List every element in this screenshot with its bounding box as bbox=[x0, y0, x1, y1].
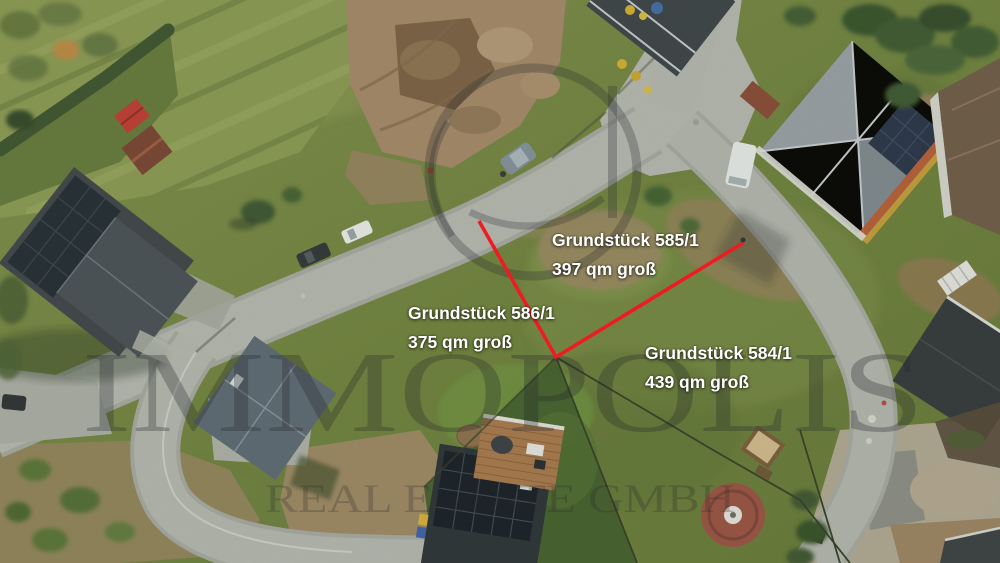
parcel-size: 375 qm groß bbox=[408, 334, 555, 351]
parcel-label-586-1: Grundstück 586/1 375 qm groß bbox=[408, 305, 555, 351]
watermark-subline: REAL ESTATE GMBH bbox=[265, 476, 735, 521]
parcel-name: Grundstück 585/1 bbox=[552, 230, 699, 250]
boundary-marker-post bbox=[741, 238, 746, 243]
aerial-scene: IMMOPOLIS REAL ESTATE GMBH bbox=[0, 0, 1000, 563]
parcel-name: Grundstück 586/1 bbox=[408, 303, 555, 323]
parcel-label-585-1: Grundstück 585/1 397 qm groß bbox=[552, 232, 699, 278]
parcel-size: 397 qm groß bbox=[552, 261, 699, 278]
parcel-name: Grundstück 584/1 bbox=[645, 343, 792, 363]
aerial-photo: IMMOPOLIS REAL ESTATE GMBH Grundstück 58… bbox=[0, 0, 1000, 563]
parcel-label-584-1: Grundstück 584/1 439 qm groß bbox=[645, 345, 792, 391]
parcel-size: 439 qm groß bbox=[645, 374, 792, 391]
